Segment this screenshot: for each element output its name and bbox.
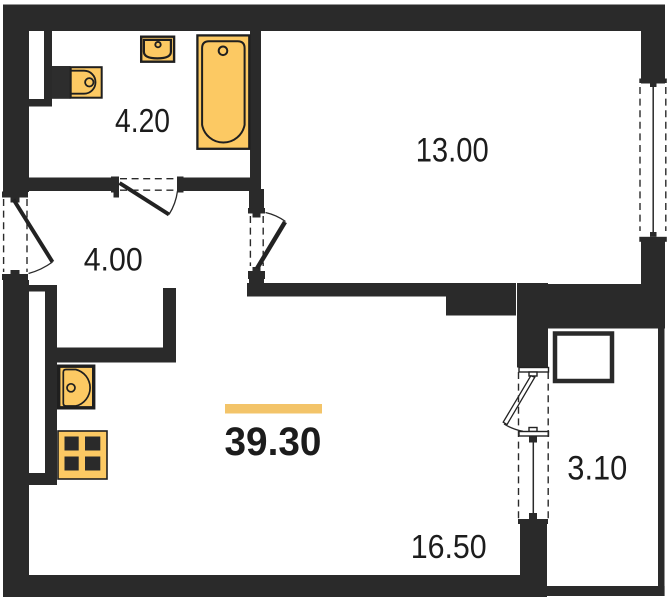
svg-text:3.10: 3.10 [567,450,627,488]
svg-text:16.50: 16.50 [411,528,487,565]
svg-text:13.00: 13.00 [416,132,489,170]
svg-text:39.30: 39.30 [225,420,322,464]
svg-text:4.00: 4.00 [84,242,143,278]
svg-text:4.20: 4.20 [115,103,170,140]
